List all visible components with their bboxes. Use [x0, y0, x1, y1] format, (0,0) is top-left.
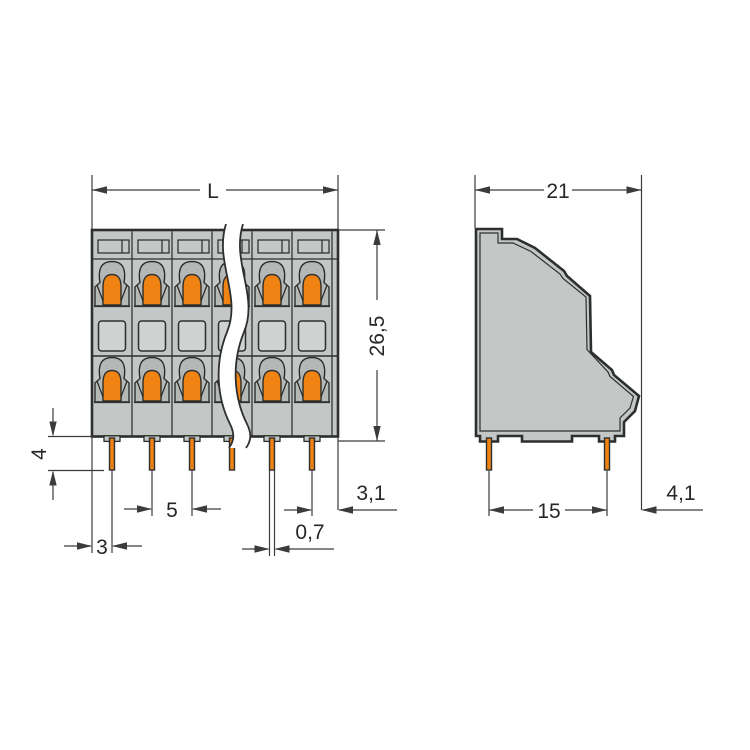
- dimension-pin-back-offset-4-1: 4,1: [642, 482, 704, 514]
- first-pin-offset-label: 3: [96, 536, 108, 559]
- side-view: [476, 229, 639, 470]
- arrow-left: [489, 506, 504, 513]
- dimension-last-pin-offset-3-1: 3,1: [284, 482, 397, 514]
- arrow-right: [627, 186, 642, 193]
- arrow-left: [275, 545, 290, 552]
- arrow-left: [338, 506, 353, 513]
- arrow-left: [475, 186, 490, 193]
- last-pin-offset-label: 3,1: [356, 482, 385, 505]
- arrow-left: [192, 505, 207, 512]
- side-solder-pin-front: [487, 438, 492, 470]
- arrow-right: [323, 186, 338, 193]
- dimensional-drawing-canvas: L 26,5 4 5 3 0,7: [0, 0, 750, 750]
- terminal-block-dimensional-drawing: L 26,5 4 5 3 0,7: [0, 0, 750, 750]
- side-solder-pin-back: [605, 438, 610, 470]
- arrow-right: [592, 506, 607, 513]
- side-housing-profile: [476, 229, 639, 442]
- front-view: [92, 224, 338, 470]
- pin-back-offset-label: 4,1: [666, 482, 695, 505]
- arrow-left: [642, 506, 657, 513]
- arrow-down: [373, 426, 380, 441]
- dimension-pin-row-spacing-15: 15: [489, 500, 607, 523]
- arrow-up: [49, 471, 56, 486]
- arrow-right: [77, 542, 92, 549]
- arrow-down: [49, 422, 56, 437]
- pin-length-label: 4: [28, 448, 51, 460]
- arrow-left: [112, 542, 127, 549]
- pin-width-label: 0,7: [295, 521, 324, 544]
- pitch-label: 5: [166, 499, 178, 522]
- dimension-depth-21: 21: [475, 180, 642, 203]
- arrow-right: [297, 506, 312, 513]
- length-label: L: [207, 180, 219, 203]
- height-label: 26,5: [366, 316, 389, 357]
- arrow-left: [92, 186, 107, 193]
- dimension-pitch-5: 5: [124, 499, 221, 522]
- dimension-height-26-5: 26,5: [366, 230, 389, 441]
- dimension-first-pin-offset-3: 3: [64, 536, 142, 559]
- dimension-length-L: L: [92, 180, 338, 203]
- arrow-right: [255, 545, 270, 552]
- dimension-pin-width-0-7: 0,7: [242, 521, 334, 553]
- dimension-pin-length-4: 4: [28, 408, 57, 500]
- arrow-up: [373, 230, 380, 245]
- depth-label: 21: [546, 180, 569, 203]
- pin-row-spacing-label: 15: [537, 500, 560, 523]
- arrow-right: [137, 505, 152, 512]
